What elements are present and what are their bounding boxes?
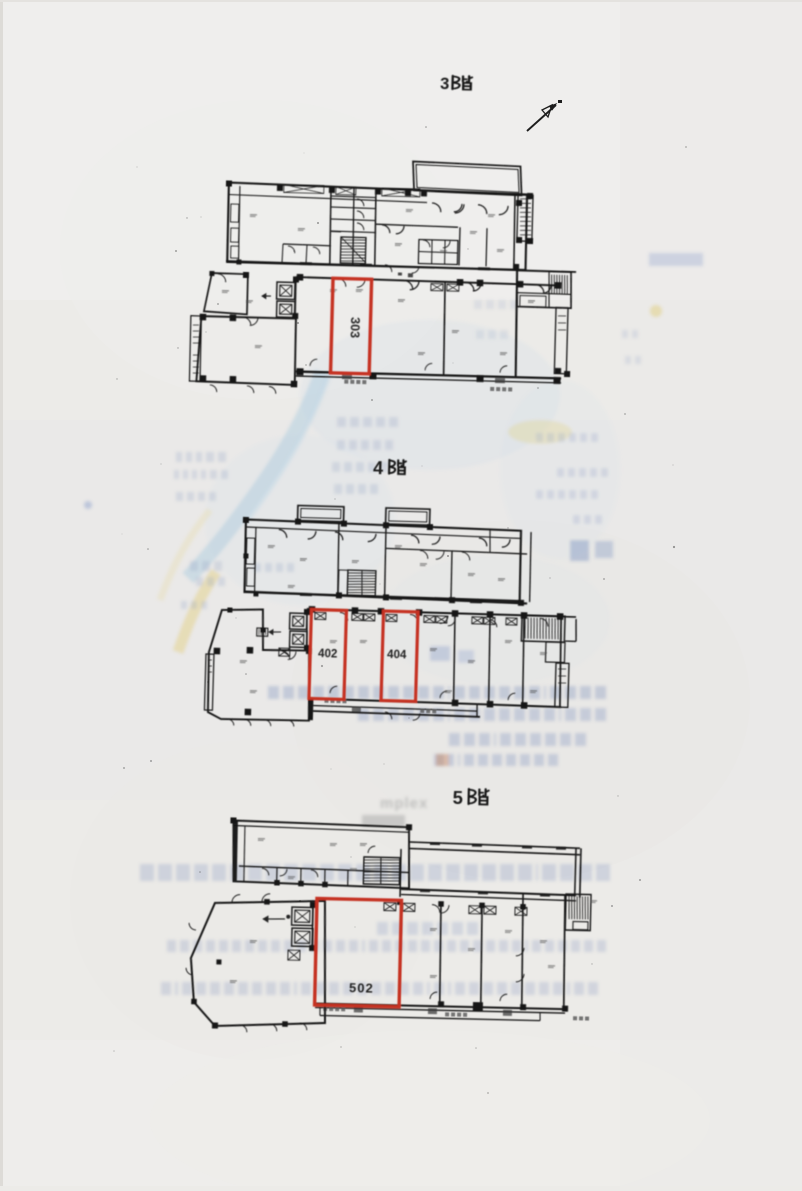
svg-text:5: 5 — [452, 787, 463, 808]
svg-text:402: 402 — [318, 648, 338, 661]
svg-text:303: 303 — [347, 317, 362, 338]
svg-text:3: 3 — [440, 75, 450, 93]
svg-text:404: 404 — [387, 649, 407, 662]
svg-text:mplex: mplex — [380, 795, 428, 812]
svg-text:4: 4 — [373, 458, 384, 478]
svg-text:502: 502 — [349, 980, 374, 996]
